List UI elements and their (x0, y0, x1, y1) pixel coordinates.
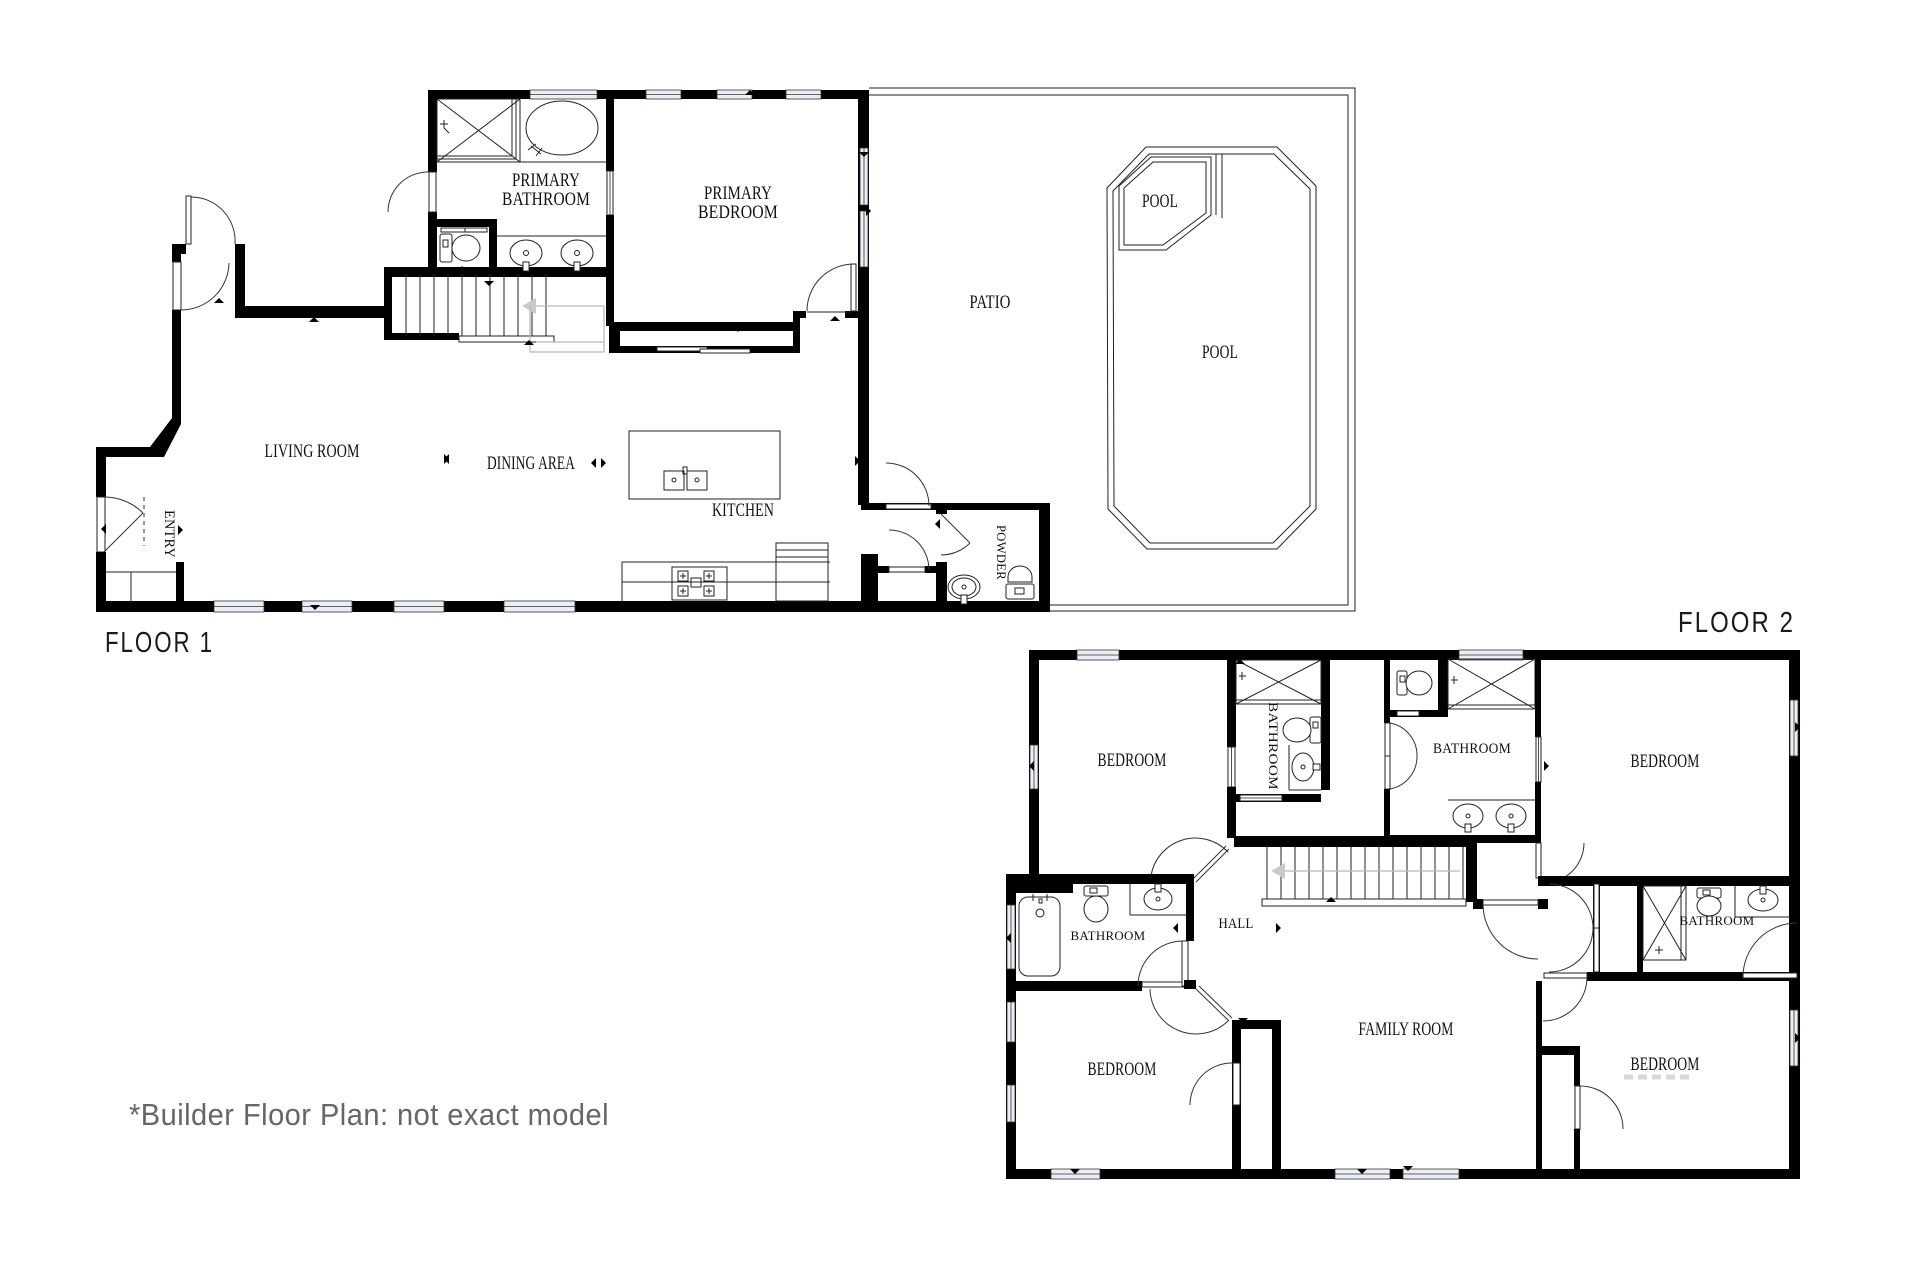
svg-text:KITCHEN: KITCHEN (712, 500, 774, 521)
svg-text:BEDROOM: BEDROOM (1631, 1054, 1700, 1075)
svg-text:BATHROOM: BATHROOM (502, 189, 590, 210)
svg-text:PATIO: PATIO (970, 292, 1011, 313)
svg-text:FLOOR 1: FLOOR 1 (105, 627, 214, 659)
svg-text:DINING AREA: DINING AREA (487, 453, 575, 474)
svg-text:PRIMARY: PRIMARY (512, 170, 580, 191)
svg-text:PRIMARY: PRIMARY (704, 183, 772, 204)
svg-text:BEDROOM: BEDROOM (698, 202, 778, 223)
svg-text:LIVING ROOM: LIVING ROOM (265, 441, 360, 462)
svg-text:BEDROOM: BEDROOM (1088, 1059, 1157, 1080)
svg-text:POOL: POOL (1142, 191, 1178, 212)
svg-text:ENTRY: ENTRY (161, 510, 177, 558)
svg-text:BEDROOM: BEDROOM (1098, 750, 1167, 771)
svg-text:FAMILY ROOM: FAMILY ROOM (1359, 1019, 1454, 1040)
svg-text:BATHROOM: BATHROOM (1071, 929, 1146, 943)
svg-text:FLOOR 2: FLOOR 2 (1678, 607, 1795, 639)
svg-text:POOL: POOL (1202, 342, 1238, 363)
svg-text:BEDROOM: BEDROOM (1631, 751, 1700, 772)
svg-text:BATHROOM: BATHROOM (1433, 741, 1511, 757)
svg-text:BATHROOM: BATHROOM (1266, 702, 1280, 790)
svg-text:*Builder Floor Plan: not exact: *Builder Floor Plan: not exact model (129, 1097, 609, 1132)
svg-text:HALL: HALL (1219, 916, 1254, 932)
svg-text:BATHROOM: BATHROOM (1680, 914, 1755, 928)
svg-text:POWDER: POWDER (994, 525, 1008, 580)
